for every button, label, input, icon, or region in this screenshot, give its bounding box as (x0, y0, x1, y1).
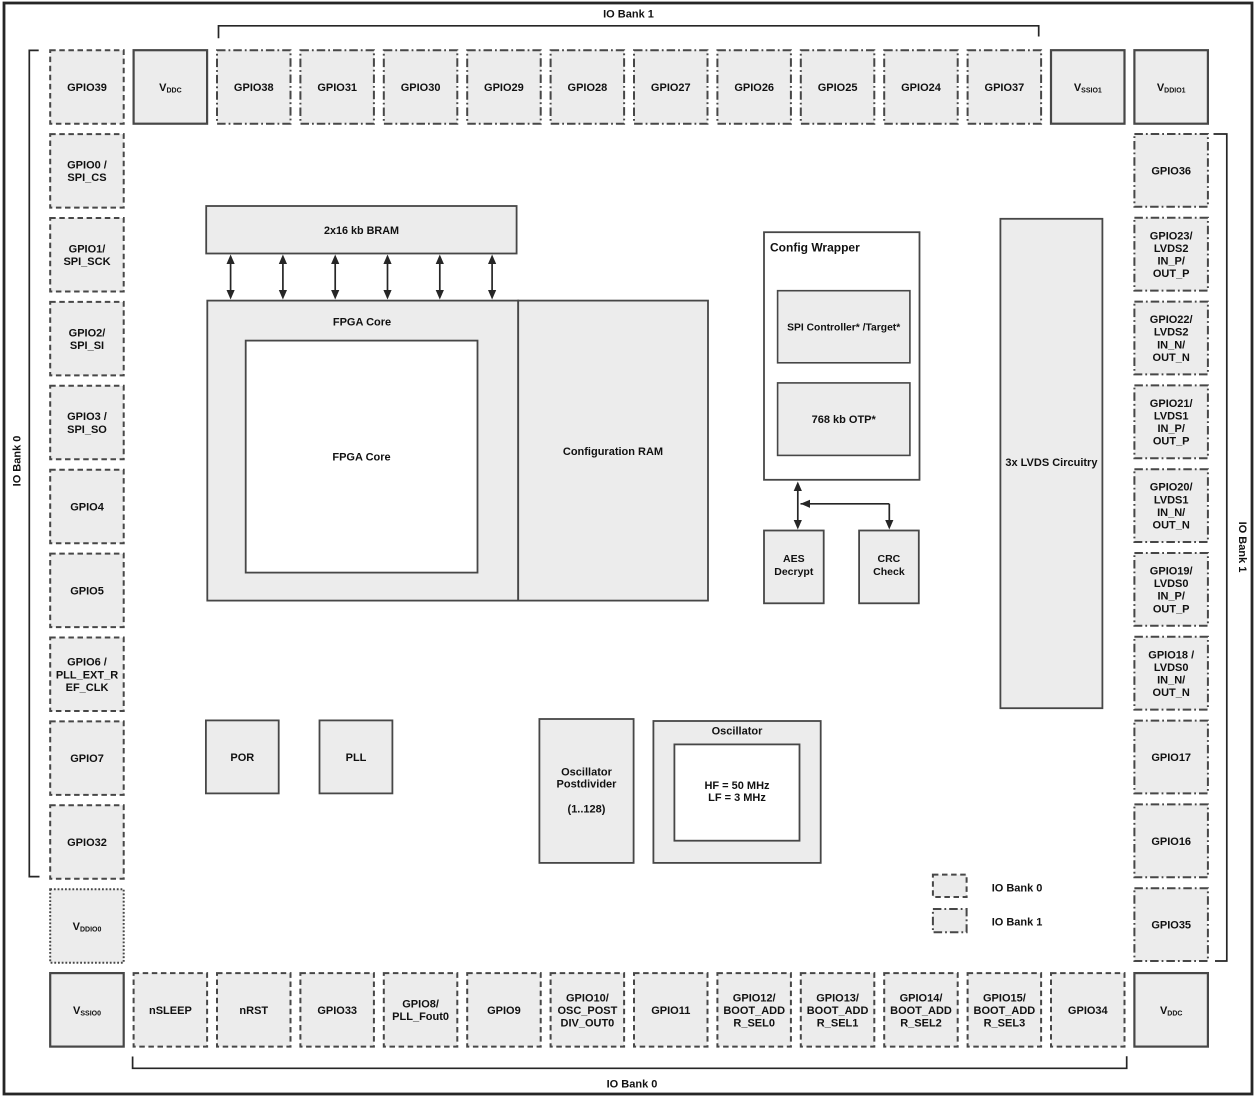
svg-text:R_SEL2: R_SEL2 (900, 1018, 942, 1030)
svg-text:GPIO9: GPIO9 (487, 1005, 521, 1017)
svg-text:R_SEL1: R_SEL1 (817, 1018, 859, 1030)
svg-text:FPGA Core: FPGA Core (332, 452, 390, 464)
svg-text:GPIO15/: GPIO15/ (983, 992, 1026, 1004)
svg-text:PLL: PLL (346, 752, 367, 764)
svg-text:LVDS2: LVDS2 (1154, 243, 1189, 255)
svg-text:nRST: nRST (239, 1005, 268, 1017)
svg-text:OUT_N: OUT_N (1153, 687, 1190, 699)
svg-text:BOOT_ADD: BOOT_ADD (890, 1005, 952, 1017)
svg-text:GPIO20/: GPIO20/ (1150, 482, 1193, 494)
svg-text:R_SEL0: R_SEL0 (733, 1018, 775, 1030)
svg-text:Oscillator: Oscillator (561, 766, 612, 778)
svg-text:LVDS2: LVDS2 (1154, 327, 1189, 339)
svg-text:GPIO34: GPIO34 (1068, 1005, 1109, 1017)
svg-text:GPIO23/: GPIO23/ (1150, 230, 1193, 242)
svg-text:GPIO8/: GPIO8/ (402, 999, 439, 1011)
svg-text:GPIO25: GPIO25 (818, 82, 858, 94)
svg-text:Config Wrapper: Config Wrapper (770, 241, 860, 255)
svg-text:PLL_Fout0: PLL_Fout0 (392, 1011, 449, 1023)
svg-text:GPIO14/: GPIO14/ (900, 992, 943, 1004)
svg-text:IO Bank 0: IO Bank 0 (992, 883, 1043, 895)
svg-text:GPIO1/: GPIO1/ (69, 243, 106, 255)
svg-text:SPI Controller* /Target*: SPI Controller* /Target* (787, 323, 900, 334)
svg-text:FPGA Core: FPGA Core (333, 317, 391, 329)
svg-text:OUT_P: OUT_P (1153, 603, 1190, 615)
svg-text:IO Bank 0: IO Bank 0 (607, 1079, 658, 1091)
svg-text:GPIO6 /: GPIO6 / (67, 657, 107, 669)
svg-text:GPIO16: GPIO16 (1151, 836, 1191, 848)
svg-text:GPIO11: GPIO11 (651, 1005, 690, 1017)
svg-text:GPIO17: GPIO17 (1151, 752, 1191, 764)
svg-text:GPIO21/: GPIO21/ (1150, 398, 1193, 410)
svg-text:GPIO26: GPIO26 (734, 82, 774, 94)
svg-text:SPI_SO: SPI_SO (67, 424, 107, 436)
svg-text:POR: POR (230, 752, 254, 764)
svg-text:OUT_N: OUT_N (1153, 520, 1190, 532)
svg-text:3x LVDS Circuitry: 3x LVDS Circuitry (1005, 457, 1098, 469)
svg-text:IN_N/: IN_N/ (1157, 507, 1185, 519)
svg-text:GPIO18 /: GPIO18 / (1148, 649, 1194, 661)
svg-text:Decrypt: Decrypt (774, 566, 814, 578)
svg-text:GPIO31: GPIO31 (317, 82, 357, 94)
svg-text:IN_N/: IN_N/ (1157, 339, 1185, 351)
svg-text:Oscillator: Oscillator (712, 726, 763, 738)
svg-text:GPIO2/: GPIO2/ (69, 327, 106, 339)
svg-text:GPIO30: GPIO30 (401, 82, 441, 94)
svg-text:EF_CLK: EF_CLK (66, 682, 109, 694)
svg-text:GPIO33: GPIO33 (317, 1005, 357, 1017)
svg-text:OSC_POST: OSC_POST (557, 1005, 617, 1017)
svg-text:AES: AES (783, 553, 805, 565)
svg-text:IN_P/: IN_P/ (1157, 423, 1185, 435)
svg-text:GPIO38: GPIO38 (234, 82, 274, 94)
svg-text:GPIO13/: GPIO13/ (816, 992, 859, 1004)
svg-text:IO Bank 1: IO Bank 1 (1236, 522, 1248, 573)
svg-text:GPIO4: GPIO4 (70, 501, 105, 513)
svg-text:nSLEEP: nSLEEP (149, 1005, 192, 1017)
svg-text:IN_P/: IN_P/ (1157, 256, 1185, 268)
svg-text:IN_N/: IN_N/ (1157, 675, 1185, 687)
svg-text:R_SEL3: R_SEL3 (984, 1018, 1026, 1030)
svg-text:GPIO19/: GPIO19/ (1150, 566, 1193, 578)
svg-text:HF = 50 MHz: HF = 50 MHz (704, 780, 770, 792)
svg-text:LVDS0: LVDS0 (1154, 662, 1189, 674)
svg-text:LVDS1: LVDS1 (1154, 494, 1189, 506)
svg-text:LVDS0: LVDS0 (1154, 578, 1189, 590)
svg-text:GPIO28: GPIO28 (568, 82, 608, 94)
svg-text:GPIO36: GPIO36 (1151, 165, 1191, 177)
svg-text:DIV_OUT0: DIV_OUT0 (561, 1018, 615, 1030)
svg-text:BOOT_ADD: BOOT_ADD (807, 1005, 869, 1017)
svg-text:GPIO22/: GPIO22/ (1150, 314, 1193, 326)
svg-text:GPIO12/: GPIO12/ (733, 992, 776, 1004)
svg-text:GPIO37: GPIO37 (985, 82, 1025, 94)
svg-text:Configuration RAM: Configuration RAM (563, 446, 663, 458)
svg-text:GPIO29: GPIO29 (484, 82, 524, 94)
svg-text:CRC: CRC (878, 553, 901, 565)
svg-text:GPIO0 /: GPIO0 / (67, 160, 107, 172)
svg-text:LF = 3 MHz: LF = 3 MHz (708, 792, 766, 804)
svg-text:OUT_N: OUT_N (1153, 352, 1190, 364)
svg-text:SPI_SCK: SPI_SCK (63, 256, 110, 268)
svg-text:OUT_P: OUT_P (1153, 268, 1190, 280)
svg-text:GPIO35: GPIO35 (1151, 920, 1191, 932)
svg-text:LVDS1: LVDS1 (1154, 411, 1189, 423)
svg-text:GPIO10/: GPIO10/ (566, 992, 609, 1004)
svg-text:IO Bank 0: IO Bank 0 (11, 436, 23, 487)
svg-text:Check: Check (873, 566, 905, 578)
svg-text:SPI_CS: SPI_CS (67, 172, 106, 184)
svg-text:GPIO7: GPIO7 (70, 753, 104, 765)
svg-text:PLL_EXT_R: PLL_EXT_R (56, 669, 118, 681)
svg-text:768 kb OTP*: 768 kb OTP* (812, 414, 877, 426)
svg-text:BOOT_ADD: BOOT_ADD (974, 1005, 1036, 1017)
svg-text:GPIO5: GPIO5 (70, 585, 104, 597)
svg-text:OUT_P: OUT_P (1153, 436, 1190, 448)
svg-text:SPI_SI: SPI_SI (70, 340, 104, 352)
svg-text:IN_P/: IN_P/ (1157, 591, 1185, 603)
svg-text:BOOT_ADD: BOOT_ADD (723, 1005, 785, 1017)
svg-text:2x16 kb BRAM: 2x16 kb BRAM (324, 225, 399, 237)
svg-text:GPIO27: GPIO27 (651, 82, 691, 94)
svg-text:GPIO32: GPIO32 (67, 837, 107, 849)
svg-text:(1..128): (1..128) (568, 803, 606, 815)
svg-text:GPIO24: GPIO24 (901, 82, 942, 94)
svg-text:GPIO39: GPIO39 (67, 82, 107, 94)
svg-text:IO Bank 1: IO Bank 1 (603, 9, 654, 21)
svg-text:Postdivider: Postdivider (557, 779, 618, 791)
svg-text:IO Bank 1: IO Bank 1 (992, 917, 1043, 929)
svg-text:GPIO3 /: GPIO3 / (67, 411, 107, 423)
